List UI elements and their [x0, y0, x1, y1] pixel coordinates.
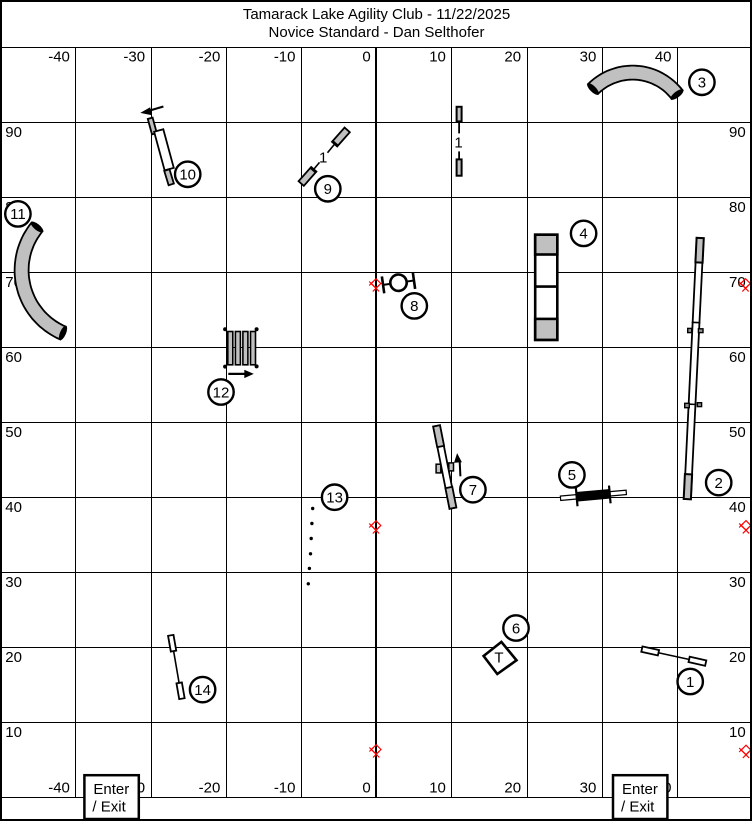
svg-text:50: 50: [5, 424, 22, 441]
svg-text:3: 3: [698, 75, 706, 92]
svg-text:20: 20: [5, 649, 22, 666]
svg-text:20: 20: [504, 49, 521, 66]
svg-text:12: 12: [213, 384, 230, 401]
svg-text:10: 10: [729, 724, 746, 741]
svg-text:8: 8: [410, 298, 418, 315]
svg-text:Enter: Enter: [93, 781, 129, 798]
svg-text:40: 40: [655, 49, 672, 66]
svg-text:0: 0: [362, 780, 370, 797]
svg-text:0: 0: [362, 49, 370, 66]
svg-text:14: 14: [194, 682, 211, 699]
svg-text:1: 1: [686, 674, 694, 691]
svg-text:30: 30: [580, 49, 597, 66]
svg-text:13: 13: [326, 490, 343, 507]
svg-text:11: 11: [10, 206, 26, 223]
svg-text:60: 60: [5, 349, 22, 366]
svg-text:6: 6: [512, 620, 520, 637]
svg-text:Novice Standard - Dan Selthofe: Novice Standard - Dan Selthofer: [269, 24, 485, 41]
svg-text:Tamarack Lake Agility Club - 1: Tamarack Lake Agility Club - 11/22/2025: [243, 6, 510, 23]
svg-text:1: 1: [319, 149, 327, 166]
svg-text:50: 50: [729, 424, 746, 441]
svg-text:80: 80: [729, 199, 746, 216]
svg-text:-10: -10: [274, 49, 296, 66]
svg-text:60: 60: [729, 349, 746, 366]
svg-text:9: 9: [324, 181, 332, 198]
svg-text:-20: -20: [199, 49, 221, 66]
svg-text:-20: -20: [199, 780, 221, 797]
svg-text:40: 40: [5, 499, 22, 516]
svg-text:7: 7: [469, 482, 477, 499]
svg-text:90: 90: [729, 124, 746, 141]
svg-text:30: 30: [5, 574, 22, 591]
svg-text:T: T: [494, 649, 503, 666]
svg-text:70: 70: [729, 274, 746, 291]
svg-text:-40: -40: [48, 780, 70, 797]
svg-text:10: 10: [429, 780, 446, 797]
svg-text:90: 90: [5, 124, 22, 141]
svg-text:1: 1: [454, 134, 462, 151]
svg-text:2: 2: [715, 475, 723, 492]
svg-text:10: 10: [429, 49, 446, 66]
svg-text:20: 20: [729, 649, 746, 666]
svg-text:5: 5: [568, 467, 576, 484]
svg-text:-10: -10: [274, 780, 296, 797]
svg-text:Enter: Enter: [622, 781, 658, 798]
svg-text:30: 30: [729, 574, 746, 591]
svg-text:-30: -30: [123, 49, 145, 66]
svg-text:10: 10: [179, 167, 196, 184]
svg-text:10: 10: [5, 724, 22, 741]
svg-text:/ Exit: / Exit: [621, 799, 655, 816]
svg-text:/ Exit: / Exit: [92, 799, 126, 816]
svg-text:40: 40: [729, 499, 746, 516]
svg-text:4: 4: [579, 226, 587, 243]
svg-text:-40: -40: [48, 49, 70, 66]
svg-text:20: 20: [504, 780, 521, 797]
svg-text:30: 30: [580, 780, 597, 797]
